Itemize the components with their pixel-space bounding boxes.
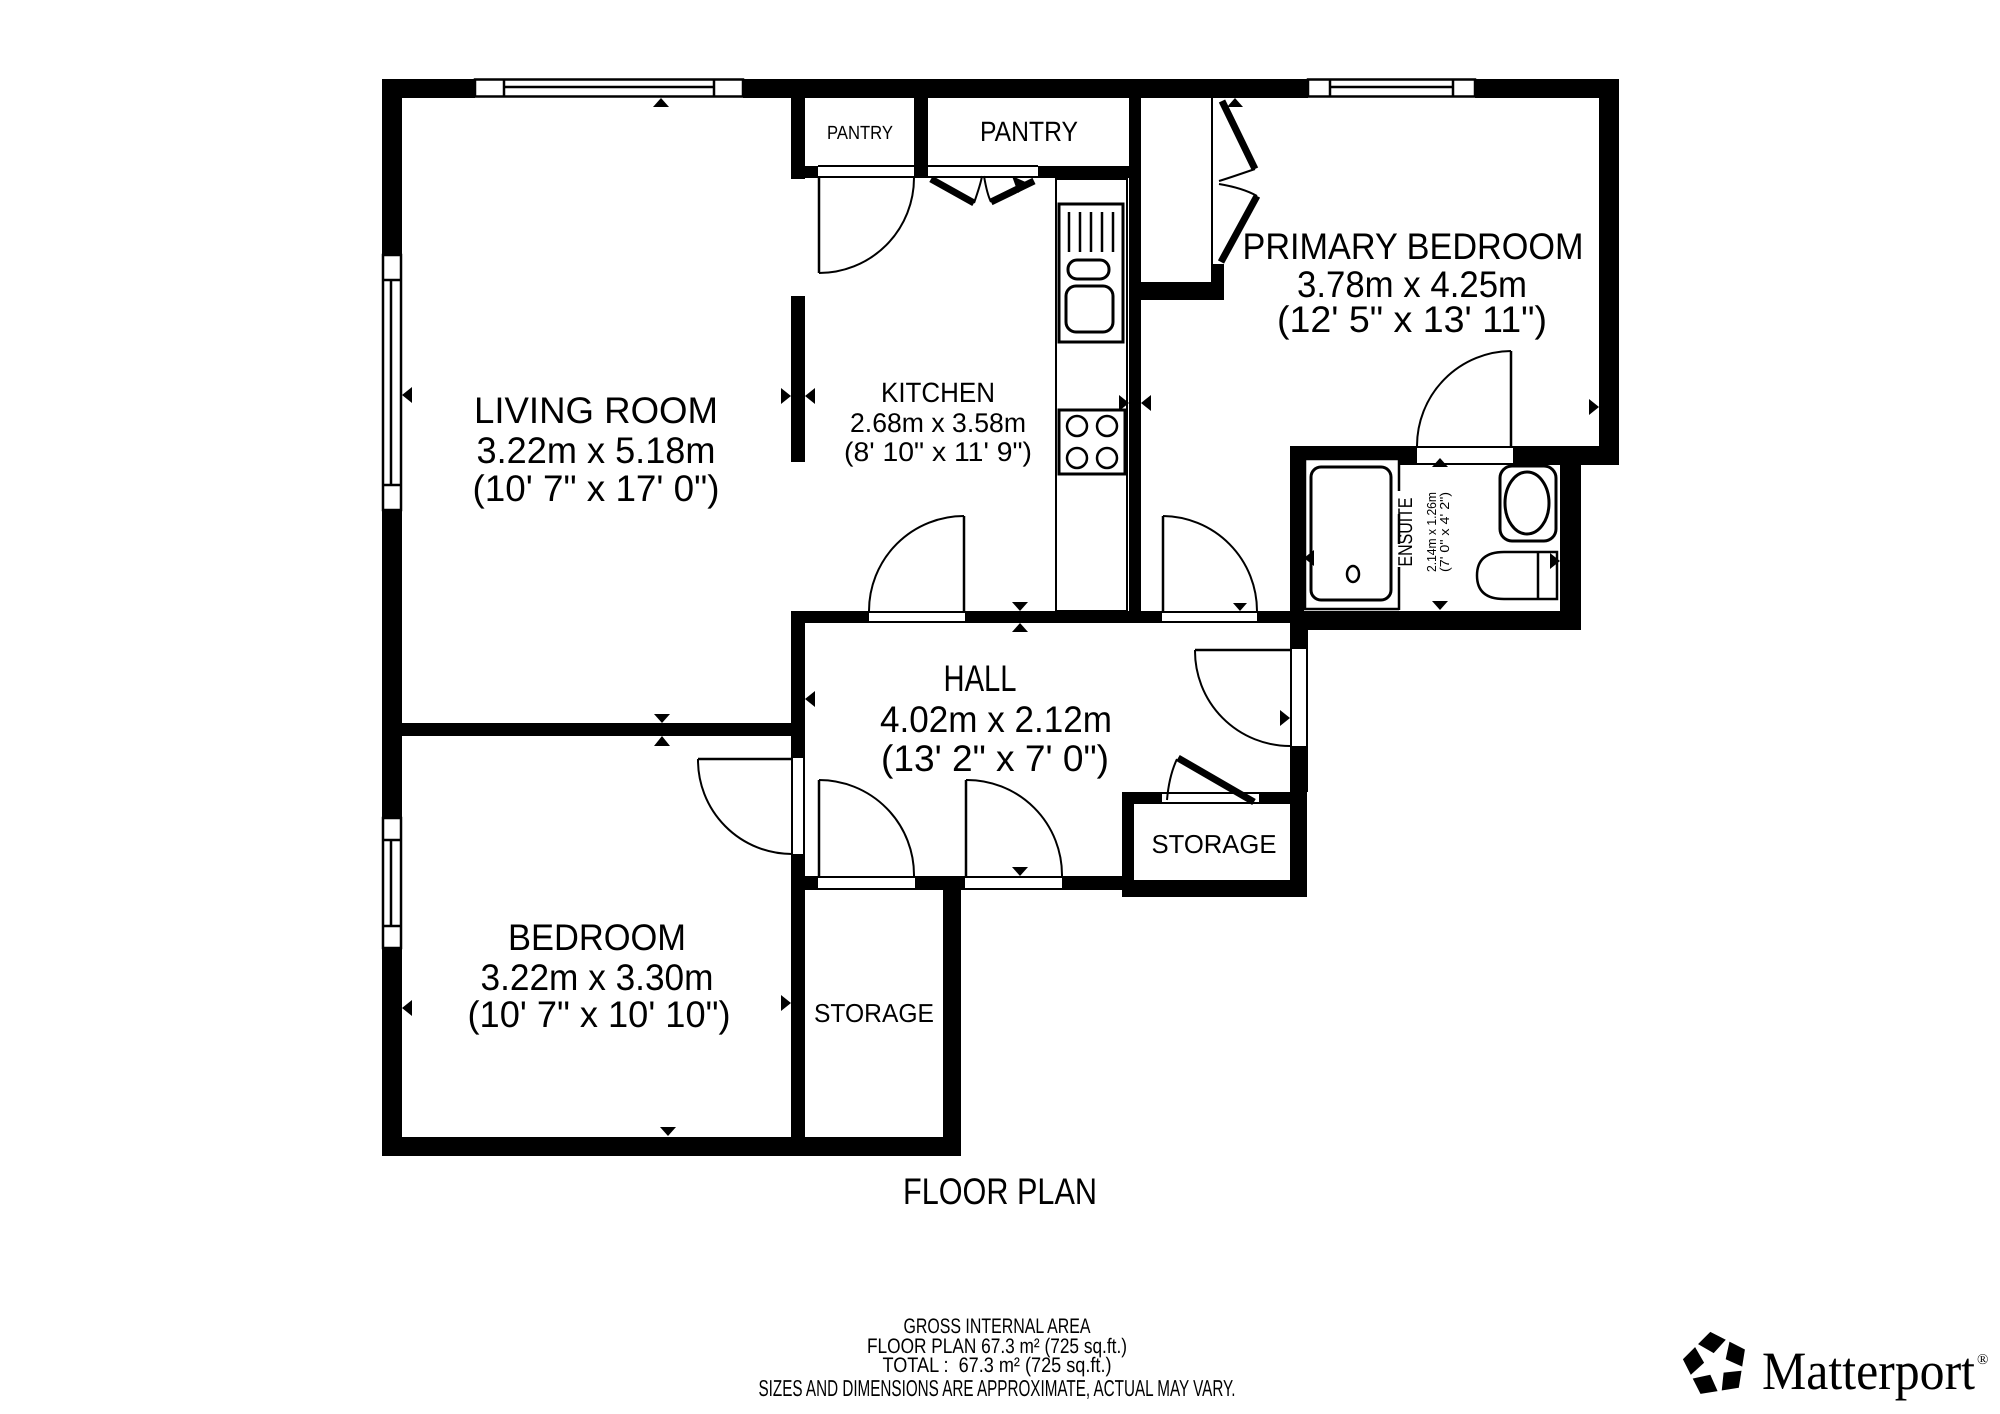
svg-text:PRIMARY BEDROOM: PRIMARY BEDROOM xyxy=(1243,226,1584,267)
svg-text:(10' 7" x 17' 0"): (10' 7" x 17' 0") xyxy=(473,468,720,509)
svg-text:ENSUITE: ENSUITE xyxy=(1395,498,1417,567)
svg-text:3.22m x 3.30m: 3.22m x 3.30m xyxy=(481,957,714,998)
svg-text:KITCHEN: KITCHEN xyxy=(881,377,995,408)
svg-text:Matterport: Matterport xyxy=(1762,1341,1975,1401)
svg-text:PANTRY: PANTRY xyxy=(980,116,1078,147)
svg-text:TOTAL : 67.3 m² (725 sq.ft.): TOTAL : 67.3 m² (725 sq.ft.) xyxy=(883,1354,1112,1377)
svg-text:(8' 10" x 11' 9"): (8' 10" x 11' 9") xyxy=(844,437,1032,467)
svg-text:STORAGE: STORAGE xyxy=(1152,829,1277,859)
svg-text:3.22m x 5.18m: 3.22m x 5.18m xyxy=(477,430,716,471)
svg-text:SIZES AND DIMENSIONS ARE APPRO: SIZES AND DIMENSIONS ARE APPROXIMATE, AC… xyxy=(759,1375,1236,1401)
svg-text:4.02m x 2.12m: 4.02m x 2.12m xyxy=(880,699,1112,740)
svg-text:LIVING ROOM: LIVING ROOM xyxy=(474,390,718,431)
svg-text:(10' 7" x 10' 10"): (10' 7" x 10' 10") xyxy=(468,994,731,1035)
svg-text:HALL: HALL xyxy=(944,658,1017,699)
svg-text:(12' 5" x 13' 11"): (12' 5" x 13' 11") xyxy=(1277,299,1547,340)
svg-text:PANTRY: PANTRY xyxy=(827,123,893,144)
svg-text:STORAGE: STORAGE xyxy=(814,998,934,1028)
svg-text:FLOOR PLAN: FLOOR PLAN xyxy=(903,1171,1097,1212)
svg-text:(7' 0" x 4' 2"): (7' 0" x 4' 2") xyxy=(1437,492,1452,572)
svg-text:®: ® xyxy=(1977,1352,1988,1368)
svg-text:BEDROOM: BEDROOM xyxy=(508,917,686,958)
svg-text:2.68m x 3.58m: 2.68m x 3.58m xyxy=(850,408,1026,438)
svg-text:(13' 2" x 7' 0"): (13' 2" x 7' 0") xyxy=(881,738,1109,779)
